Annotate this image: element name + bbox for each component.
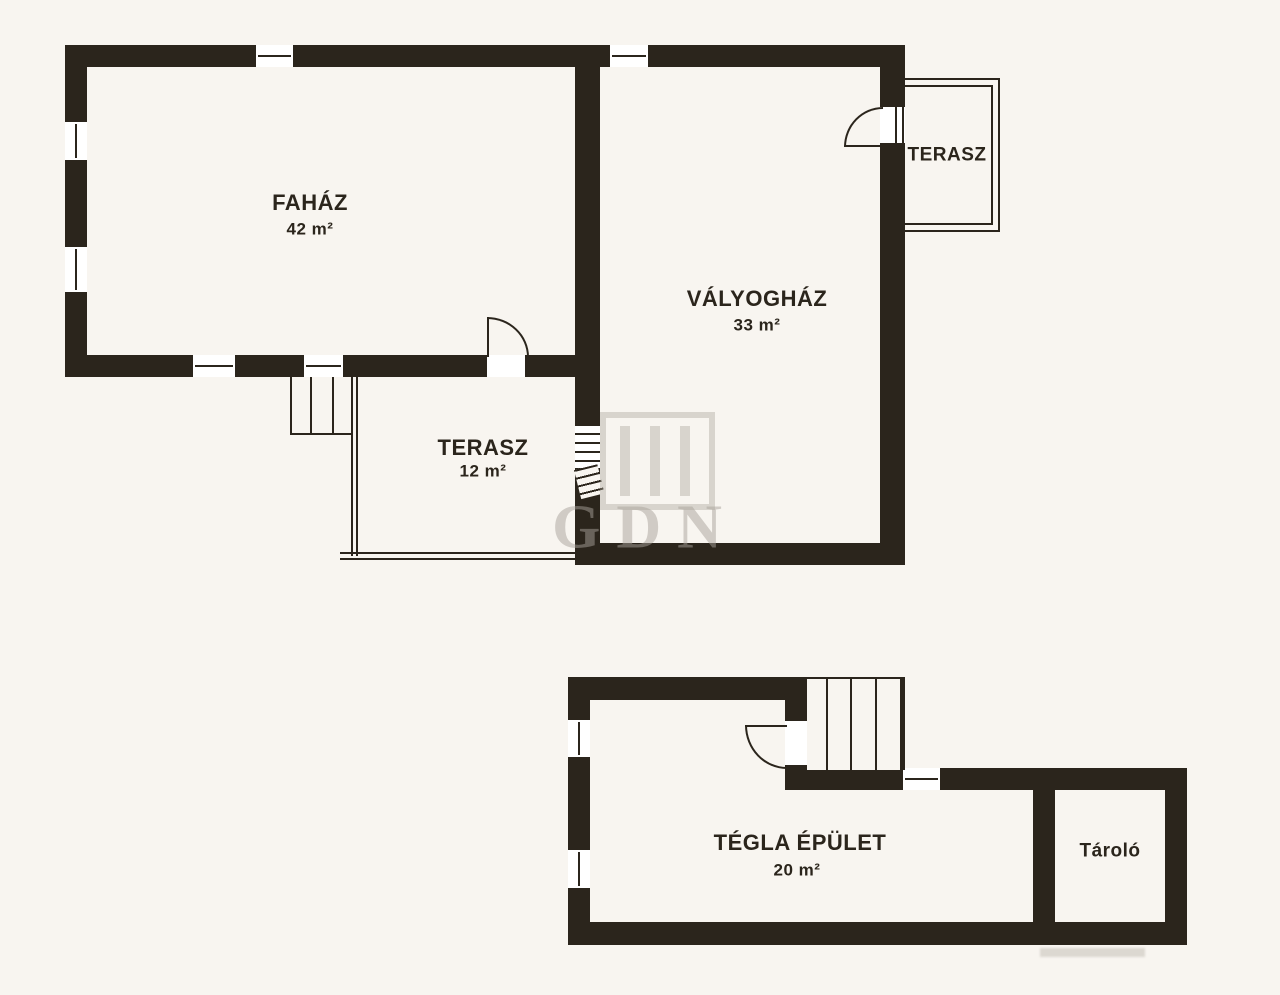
door-opening <box>487 355 525 377</box>
watermark-smudge <box>1040 948 1145 957</box>
wall-bb-divider <box>1033 768 1055 945</box>
wall-bb-left <box>568 677 590 945</box>
window-icon <box>610 45 648 67</box>
terrace-boundary-left <box>351 377 358 556</box>
area-label-valyoghaz: 33 m² <box>734 317 781 334</box>
window-icon <box>256 45 293 67</box>
window-icon <box>568 850 590 888</box>
room-label-valyoghaz: VÁLYOGHÁZ <box>687 288 828 310</box>
window-hatched-icon <box>575 424 600 468</box>
terrace-boundary-bottom <box>340 552 578 560</box>
door-swing-icon <box>487 317 529 357</box>
window-icon <box>903 768 940 790</box>
stairs-icon <box>290 377 353 435</box>
window-icon <box>304 355 343 377</box>
wall-bb-middle-top <box>785 768 1187 790</box>
window-icon <box>568 720 590 757</box>
wall-fahaz-left <box>65 45 87 377</box>
room-label-terasz-top: TERASZ <box>908 146 987 165</box>
door-swing-icon <box>745 725 787 769</box>
door-opening <box>785 721 807 765</box>
room-label-tarolo: Tároló <box>1079 842 1140 861</box>
watermark-text: GDN <box>552 493 738 564</box>
window-icon <box>65 122 87 160</box>
area-label-terasz-mid: 12 m² <box>460 463 507 480</box>
wall-bb-top <box>568 677 807 700</box>
wall-bb-bottom <box>568 922 1187 945</box>
stairs-icon <box>807 677 905 770</box>
wall-bb-right <box>1165 768 1187 945</box>
floor-plan: FAHÁZ 42 m² VÁLYOGHÁZ 33 m² TERASZ TERAS… <box>0 0 1280 995</box>
area-label-fahaz: 42 m² <box>287 221 334 238</box>
room-label-fahaz: FAHÁZ <box>272 192 348 214</box>
window-icon <box>193 355 235 377</box>
room-label-terasz-mid: TERASZ <box>438 437 529 459</box>
wall-top <box>65 45 905 67</box>
door-swing-icon <box>844 107 883 147</box>
window-icon <box>65 247 87 292</box>
area-label-tegla-epulet: 20 m² <box>774 862 821 879</box>
room-label-tegla-epulet: TÉGLA ÉPÜLET <box>714 832 887 854</box>
